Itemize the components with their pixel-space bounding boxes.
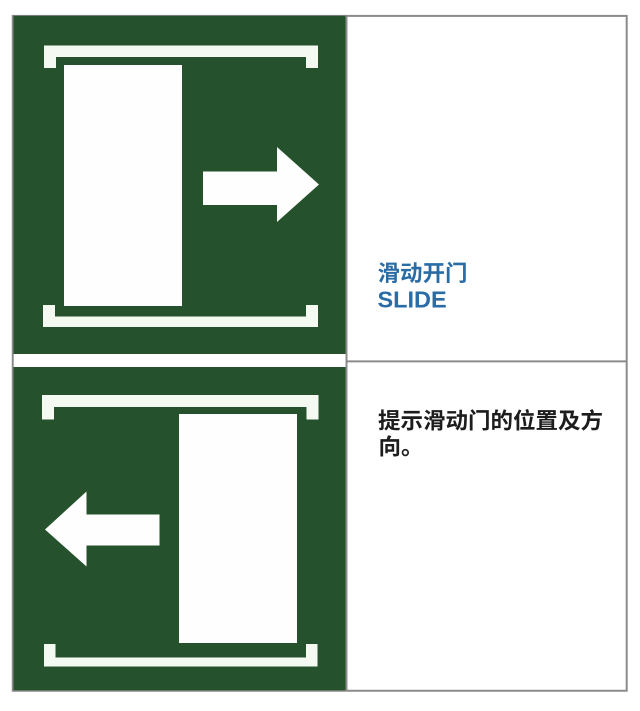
svg-text:SLIDE: SLIDE [378,287,447,313]
